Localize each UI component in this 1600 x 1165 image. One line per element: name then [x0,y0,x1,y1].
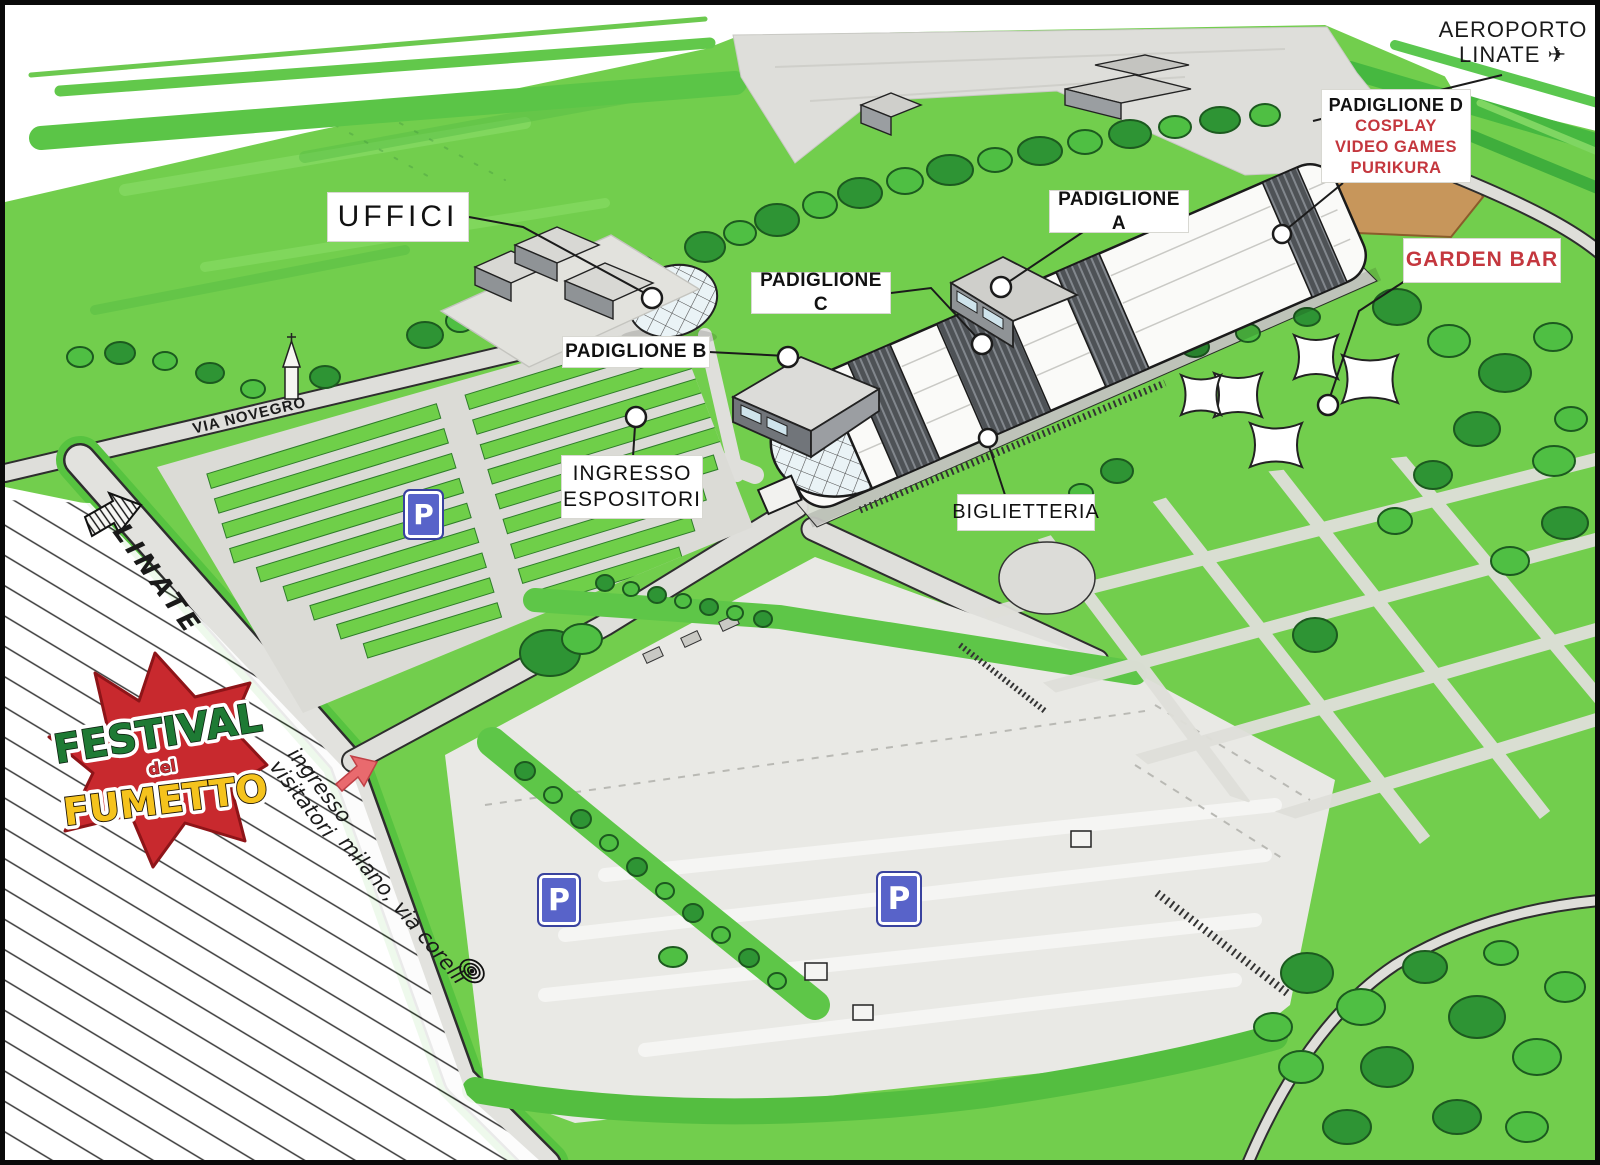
callout-ingresso-espositori: INGRESSO ESPOSITORI [561,455,703,519]
aeroporto-linate-label: AEROPORTO LINATE ✈ [1433,17,1593,68]
aeroporto-line1: AEROPORTO [1433,17,1593,42]
padiglione-d-line-videogames: VIDEO GAMES [1335,137,1457,158]
parking-sign-south-west: P [537,873,581,927]
biglietteria-label: BIGLIETTERIA [952,500,1100,525]
padiglione-d-line-purikura: PURIKURA [1350,158,1441,179]
padiglione-d-line-cosplay: COSPLAY [1355,116,1437,137]
parking-sign-south-east: P [876,871,922,927]
parking-sign-exhibitors: P [403,489,444,540]
padiglione-d-title: PADIGLIONE D [1329,94,1464,117]
aeroporto-line2: LINATE [1459,42,1540,67]
garden-plaza [999,542,1095,614]
padiglione-a-label: PADIGLIONE A [1050,188,1188,236]
uffici-label: UFFICI [338,198,459,236]
callout-garden-bar: GARDEN BAR [1403,238,1561,283]
callout-padiglione-a: PADIGLIONE A [1049,190,1189,233]
callout-padiglione-b: PADIGLIONE B [562,336,710,368]
airplane-icon: ✈ [1548,42,1567,67]
ingresso-espositori-line2: ESPOSITORI [563,487,701,513]
callout-uffici: UFFICI [327,192,469,242]
callout-biglietteria: BIGLIETTERIA [957,494,1095,531]
callout-padiglione-c: PADIGLIONE C [751,272,891,314]
festival-map: UFFICI PADIGLIONE A PADIGLIONE C PADIGLI… [0,0,1600,1165]
festival-logo: FESTIVAL FESTIVAL del del FUMETTO FUMETT… [35,645,285,875]
callout-padiglione-d: PADIGLIONE D COSPLAY VIDEO GAMES PURIKUR… [1321,89,1471,183]
padiglione-b-label: PADIGLIONE B [565,340,707,364]
garden-bar-label: GARDEN BAR [1406,247,1558,273]
padiglione-c-label: PADIGLIONE C [752,269,890,317]
ingresso-espositori-line1: INGRESSO [573,461,692,487]
